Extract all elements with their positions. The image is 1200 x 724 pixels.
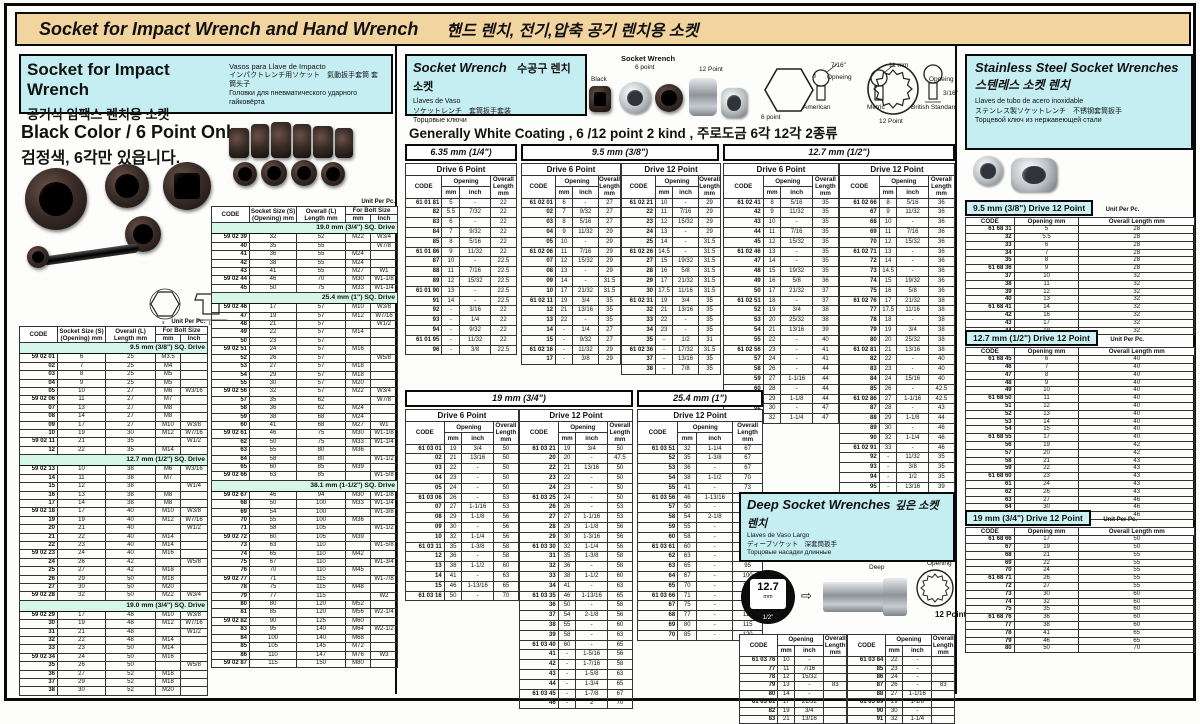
impact-header-box: Socket for Impact Wrench 공기식 임팩스 렌치용 소켓 … <box>19 54 393 114</box>
table-row: 301948M12W7/16 <box>20 620 208 628</box>
table-row: 90321-1/446 <box>840 433 955 443</box>
table-row: 34728 <box>966 249 1195 257</box>
table-row: 91321-1/4 <box>848 715 955 723</box>
table-row: 59 02 291748M10W3/8 <box>20 611 208 619</box>
table-row: 434155M27W1 <box>212 268 398 276</box>
table-row: 59 02 232440M16 <box>20 550 208 558</box>
table-row: 802025/3238 <box>840 335 955 345</box>
table-row: 773860 <box>966 621 1195 629</box>
table-row: 3017.511/1631.5 <box>622 286 721 296</box>
table-row: 455075M33W1-1/4 <box>212 284 398 292</box>
table-row: 61 02 11193/435 <box>522 296 621 306</box>
table-row: 59 02 461757M10W3/8 <box>212 304 398 312</box>
unit-per-pc-label: Unit Per Pc. <box>1106 207 1140 213</box>
table-row: 61 02 5118-37 <box>724 296 839 306</box>
table-row: 3441-63 <box>520 581 633 591</box>
table-row: 61 03 11351-3/858 <box>406 542 519 552</box>
diagram-socket-wrench-label: Socket Wrench <box>621 54 675 63</box>
table-row: 7670110M45 <box>212 567 398 575</box>
stainless-title: Stainless Steel Socket Wrenches <box>975 60 1183 75</box>
hex-6point-label: 6 point <box>761 114 781 121</box>
table-row: 2413-29 <box>622 228 721 238</box>
table-row: 6954100W1-3/8 <box>212 508 398 516</box>
table-row: 61 01 815-22 <box>406 198 517 208</box>
table-row: 61 03 51321-1/467 <box>638 444 763 454</box>
stainless-table-19: 19 mm (3/4") Drive 12 Point Unit Per Pc.… <box>965 508 1195 653</box>
table-row: 7818-38 <box>840 316 955 326</box>
table-row: 231215/3229 <box>622 218 721 228</box>
table-row: 593868M24 <box>212 413 398 421</box>
table-row: 7314.5-36 <box>840 267 955 277</box>
table-row: 403555W7/8 <box>212 242 398 250</box>
banner-title-ko: 핸드 렌치, 전기,압축 공기 렌치용 소켓 <box>446 17 698 41</box>
impact-catalog-table-2: CODE Socket Size (S) (Opening) mm Overal… <box>211 206 398 668</box>
impact-table-col2: Unit Per Pc. CODE Socket Size (S) (Openi… <box>211 198 397 668</box>
table-row: 43-1-5/863 <box>520 669 633 679</box>
table-row: 59 02 87115150M80 <box>212 659 398 667</box>
table-row: 7158105W1-1/2 <box>212 525 398 533</box>
table-row: 0524-50 <box>406 483 519 493</box>
table-row: 44-1-3/465 <box>520 679 633 689</box>
stainless-title-ko: 스텐레스 소켓 렌치 <box>975 76 1183 93</box>
table-row: 8323-40 <box>840 365 955 375</box>
table-row: 61 02 2110-29 <box>622 198 721 208</box>
impact-languages: Vasos para Llave de Impacto インパクトレンチ用ソケッ… <box>229 60 385 108</box>
table-row: 02725M4 <box>20 362 208 370</box>
table-row: 592243 <box>966 465 1195 473</box>
table-row: 59 02 563257M22W3/4 <box>212 388 398 396</box>
table-row: 352650W5/8 <box>20 662 208 670</box>
table-row: 46740 <box>966 364 1195 372</box>
table-row: 88271-1/16 <box>848 690 955 698</box>
table-row: 61 03 1650-70 <box>406 591 519 601</box>
table-row: 7214-36 <box>840 257 955 267</box>
table-row: 262950M18 <box>20 575 208 583</box>
section-bar: 25.4 mm (1") SQ. Drive <box>212 293 398 304</box>
unit-per-pc-label: Unit Per Pc. <box>213 199 395 205</box>
table-row: 1322-35 <box>522 316 621 326</box>
table-row: 3236-58 <box>520 562 633 572</box>
table-row: 61 68 411432 <box>966 304 1195 312</box>
table-row: 29301-3/1656 <box>520 532 633 542</box>
table-row: 94-1/235 <box>840 472 955 482</box>
table-row: 271519/3231.5 <box>622 257 721 267</box>
table-row: 54381-1/270 <box>638 474 763 484</box>
coating-title: Generally White Coating , 6 /12 point 2 … <box>409 122 957 142</box>
table-row: 77117/16 <box>740 665 847 673</box>
table-row: 784165 <box>966 629 1195 637</box>
table-row: 37542-1/856 <box>520 611 633 621</box>
table-row: 59 02 7771115W1-7/8 <box>212 575 398 583</box>
drive-size-badge: 12.7mm 1/2" <box>741 570 795 624</box>
table-row: 191940M12W7/16 <box>20 516 208 524</box>
table-row: 2020-47.5 <box>520 454 633 464</box>
table-row: 2423-50 <box>520 483 633 493</box>
section-bar: 38.1 mm (1-1/2") SQ. Drive <box>212 480 398 491</box>
table-row: 44117/1635 <box>724 228 839 238</box>
table-row: 0322-50 <box>406 464 519 474</box>
table-row: 38-7/835 <box>622 365 721 375</box>
table-row: 88291-1/844 <box>840 414 955 424</box>
table-row: 0930-56 <box>406 522 519 532</box>
table-row: 325.528 <box>966 234 1195 242</box>
table-row: 701215/3236 <box>840 237 955 247</box>
table-row: 59 02 061127M7 <box>20 396 208 404</box>
table-row: 492257M14 <box>212 329 398 337</box>
table-row: 502357 <box>212 337 398 345</box>
table-row: 656085M39 <box>212 463 398 471</box>
table-row: 081427M8 <box>20 413 208 421</box>
table-row: 542957M18 <box>212 371 398 379</box>
table-row: 632746 <box>966 496 1195 504</box>
table-row: 61 03 4060-65 <box>520 640 633 650</box>
table-row: 431732 <box>966 319 1195 327</box>
table-row: 7717.511/1638 <box>840 306 955 316</box>
table-row: 61 68 45640 <box>966 356 1195 364</box>
page-banner: Socket for Impact Wrench and Hand Wrench… <box>15 12 1191 46</box>
table-row: 61 02 6685/1636 <box>840 198 955 208</box>
table-row: 8526-42.5 <box>840 384 955 394</box>
unit-per-pc-label: Unit Per Pc. <box>1103 517 1137 523</box>
table-row: 572042 <box>966 449 1195 457</box>
table-title: 9.5 mm (3/8") Drive 12 Point <box>965 200 1093 216</box>
table-title: 19 mm (3/4") <box>405 390 633 407</box>
table-row: 04925M5 <box>20 379 208 387</box>
stainless-languages: Llaves de tubo de acero inoxidable ステンレス… <box>975 97 1183 126</box>
table-row: 212240M14 <box>20 533 208 541</box>
table-row: 794665 <box>966 637 1195 645</box>
table-row: 61 02 86271-1/1642.5 <box>840 394 955 404</box>
table-row: 733060 <box>966 590 1195 598</box>
table-row: 8585/1622 <box>406 237 517 247</box>
table-row: 541540 <box>966 426 1195 434</box>
table-row: 3855-60 <box>520 620 633 630</box>
table-row: 242642W5/8 <box>20 558 208 566</box>
table-row: 022113/1650 <box>406 454 519 464</box>
table-row: 1441-63 <box>406 571 519 581</box>
table-row: 8728-43 <box>840 404 955 414</box>
table-row: 61 68 661750 <box>966 536 1195 544</box>
table-title: 9.5 mm (3/8") <box>521 144 719 161</box>
section-bar: 12.7 mm (1/2") SQ. Drive <box>20 455 208 466</box>
table-row: 0423-50 <box>406 474 519 484</box>
table-row: 61 02 016-27 <box>522 198 621 208</box>
table-row: 3322-35 <box>622 316 721 326</box>
table-row: 161338M8 <box>20 491 208 499</box>
table-row: 61 68 31528 <box>966 226 1195 234</box>
table-row: 0813-29 <box>522 267 621 277</box>
table-row: 7567110W1-3/4 <box>212 559 398 567</box>
socket-wrench-section: Socket Wrench 수공구 렌치소켓 Llaves de Vaso ソケ… <box>403 50 957 706</box>
table-row: 61 68 712655 <box>966 575 1195 583</box>
table-row: 61 03 0626-53 <box>406 493 519 503</box>
british-label: British Standard <box>911 104 957 111</box>
arrow-icon: ⇨ <box>801 588 812 604</box>
table-row: 37-13/1635 <box>622 355 721 365</box>
socket-wrench-header-box: Socket Wrench 수공구 렌치소켓 Llaves de Vaso ソケ… <box>405 54 587 116</box>
table-row: 101721/3231.5 <box>522 286 621 296</box>
section-bar: 19.0 mm (3/4") SQ. Drive <box>20 600 208 611</box>
table-row: 423855M24 <box>212 259 398 267</box>
table-row: 52193/438 <box>724 306 839 316</box>
table-row: 252742M18 <box>20 567 208 575</box>
table-row: 481519/3235 <box>724 267 839 277</box>
metric-label: Metric <box>867 104 885 111</box>
table-row: 93-1/422 <box>406 316 517 326</box>
table-row: 14-1/427 <box>522 325 621 335</box>
section-bar: 19.0 mm (3/4") SQ. Drive <box>212 223 398 234</box>
table-row: 8014- <box>740 690 847 698</box>
table-row: 61 03 2524-50 <box>520 493 633 503</box>
american-bolt-icon <box>807 64 847 106</box>
table-row: 8479/3222 <box>406 228 517 238</box>
table-row: 222340M14 <box>20 541 208 549</box>
table-row: 322248M14 <box>20 637 208 645</box>
table-row: 59 02 674694M30W1-1/8 <box>212 491 398 499</box>
table-row: 84100140M68 <box>212 634 398 642</box>
deep-socket-table: CODEOpeningOverall Length mm mminch 61 0… <box>739 634 955 724</box>
table-row: 67911/3236 <box>840 208 955 218</box>
table-title: 19 mm (3/4") Drive 12 Point <box>965 510 1091 526</box>
british-bolt-icon <box>919 62 949 106</box>
table-row: 741519/3236 <box>840 276 955 286</box>
table-row: 61 03 8422- <box>848 657 955 665</box>
diagram-12point-label: 12 Point <box>699 66 723 73</box>
stainless-table-12-7: 12.7 mm (1/2") Drive 12 Point Unit Per P… <box>965 328 1195 520</box>
deep-12point-ring-icon <box>915 568 955 608</box>
table-row: 702455 <box>966 567 1195 575</box>
table-row: 7913-83 <box>740 682 847 690</box>
table-row: 151238W1/4 <box>20 483 208 491</box>
table-row: 31351-3/858 <box>520 552 633 562</box>
table-row: 5724-41 <box>724 355 839 365</box>
table-row: 69117/1636 <box>840 228 955 238</box>
table-row: 8624- <box>848 673 955 681</box>
table-row: 805070 <box>966 645 1195 653</box>
table-row: 3650-58 <box>520 601 633 611</box>
table-row: 3423-35 <box>622 325 721 335</box>
table-6-35mm: 6.35 mm (1/4") Drive 6 Point CODEOpening… <box>405 144 517 355</box>
table-row: 59 02 112135W1/2 <box>20 438 208 446</box>
table-row: 122113/1635 <box>522 306 621 316</box>
table-row: 8185120M56W2-1/4 <box>212 609 398 617</box>
table-row: 2322-50 <box>520 474 633 484</box>
table-row: 61 01 86911/3222 <box>406 247 517 257</box>
table-row: 635580M36 <box>212 447 398 455</box>
table-row: 542113/1639 <box>724 325 839 335</box>
table-row: 61 03 45-1-7/867 <box>520 689 633 699</box>
table-row: 61 68 551740 <box>966 434 1195 442</box>
table-row: 832113/16 <box>740 715 847 723</box>
table-row: 9030- <box>848 707 955 715</box>
table-row: 8080120M52 <box>212 601 398 609</box>
black-color-headline: Black Color / 6 Point Only <box>21 122 241 143</box>
table-row: 0279/3227 <box>522 208 621 218</box>
table-row: 59271-1/1644 <box>724 374 839 384</box>
stainless-header-box: Stainless Steel Socket Wrenches 스텐레스 소켓 … <box>965 54 1193 150</box>
unit-per-pc-label: Unit Per Pc. <box>1110 337 1144 343</box>
table-row: 101930M12W7/16 <box>20 430 208 438</box>
deep-socket-graphic: 12.7mm 1/2" ⇨ Deep 12 Point Opening <box>739 562 955 634</box>
table-row: 61 68 602343 <box>966 473 1195 481</box>
table-row: 482157W1/2 <box>212 321 398 329</box>
deep-title: Deep Socket Wrenches <box>747 497 891 512</box>
table-row: 49165/836 <box>724 276 839 286</box>
table-row: 61 03 35461-13/1665 <box>520 591 633 601</box>
table-row: 42-1-7/1658 <box>520 660 633 670</box>
table-row: 836-22 <box>406 218 517 228</box>
table-row: 04911/3229 <box>522 228 621 238</box>
deep-opening-label: Opening <box>927 560 952 567</box>
table-19mm: 19 mm (3/4") Drive 6 Point CODEOpeningOv… <box>405 390 633 709</box>
table-row: 48940 <box>966 379 1195 387</box>
table-row: 61 03 01193/450 <box>406 444 519 454</box>
table-row: 5336-67 <box>638 464 763 474</box>
table-row: 61 02 06117/1629 <box>522 247 621 257</box>
table-title: 12.7 mm (1/2") Drive 12 Point <box>965 330 1098 346</box>
table-row: 202140W1/2 <box>20 525 208 533</box>
table-row: 61 03 811721/32 <box>740 699 847 707</box>
table-row: 1236-58 <box>406 552 519 562</box>
page-frame: Socket for Impact Wrench and Hand Wrench… <box>4 3 1196 701</box>
table-row: 61 01 95-11/3222 <box>406 335 517 345</box>
table-row: 8523- <box>848 665 955 673</box>
table-row: 5826-44 <box>724 365 839 375</box>
table-row: 825.57/3222 <box>406 208 517 218</box>
table-row: 03825M5 <box>20 371 208 379</box>
table-row: 222113/1650 <box>520 464 633 474</box>
table-row: 47840 <box>966 371 1195 379</box>
table-row: 15-9/3227 <box>522 335 621 345</box>
table-row: 61 02 4613-35 <box>724 247 839 257</box>
table-row: 371032 <box>966 272 1195 280</box>
table-row: 531440 <box>966 418 1195 426</box>
table-row: 59 02 512457M16 <box>212 346 398 354</box>
table-row: 532757M18 <box>212 363 398 371</box>
table-row: 891215/3222.5 <box>406 276 517 286</box>
table-row: 312148W1/2 <box>20 628 208 636</box>
table-row: 28165/831.5 <box>622 267 721 277</box>
table-row: 645880W1-1/2 <box>212 455 398 463</box>
table-row: 33381-1/260 <box>520 571 633 581</box>
table-row: 79193/438 <box>840 325 955 335</box>
table-row: 13381-1/260 <box>406 562 519 572</box>
table-row: 95-13/1639 <box>840 482 955 492</box>
impact-wrench-section: Socket for Impact Wrench 공기식 임팩스 렌치용 소켓 … <box>17 50 397 702</box>
table-row: 682155 <box>966 551 1195 559</box>
table-row: 273050M20 <box>20 583 208 591</box>
table-row: 391232 <box>966 288 1195 296</box>
table-row: 92-3/1622 <box>406 306 517 316</box>
table-row: 35-1/231 <box>622 335 721 345</box>
impact-title: Socket for Impact Wrench <box>27 60 219 100</box>
deep-12point-label: 12 Point <box>935 610 966 619</box>
table-row: 582143 <box>966 457 1195 465</box>
table-row: 4714-35 <box>724 257 839 267</box>
table-row: 85105145M72 <box>212 643 398 651</box>
table-row: 61 03 30321-1/456 <box>520 542 633 552</box>
stainless-table-9-5: 9.5 mm (3/8") Drive 12 Point Unit Per Pc… <box>965 198 1195 335</box>
table-row: 61 68 36928 <box>966 265 1195 273</box>
table-row: 381132 <box>966 280 1195 288</box>
table-row: 051027M6W3/16 <box>20 388 208 396</box>
table-row: 61 02 4185/1635 <box>724 198 839 208</box>
table-row: 82193/4 <box>740 707 847 715</box>
table-row: 612443 <box>966 480 1195 488</box>
table-title: 25.4 mm (1") <box>637 390 763 407</box>
table-row: 141138M7 <box>20 474 208 482</box>
table-row: 75165/836 <box>840 286 955 296</box>
impact-title-ko: 공기식 임팩스 렌치용 소켓 <box>27 104 219 123</box>
table-row: 071215/3229 <box>522 257 621 267</box>
table-row: 61 02 2614.5-31.5 <box>622 247 721 257</box>
table-row: 722755 <box>966 582 1195 590</box>
table-9-5mm: 9.5 mm (3/8") Drive 6 Point CODEOpeningO… <box>521 144 719 375</box>
table-row: 61 02 31193/435 <box>622 296 721 306</box>
diagram-black-label: Black <box>591 76 607 83</box>
table-row: 071327M8 <box>20 404 208 412</box>
table-row: 46-270 <box>520 699 633 709</box>
table-row: 27271-1/1653 <box>520 513 633 523</box>
table-row: 6810-36 <box>840 218 955 228</box>
table-row: 553057M20 <box>212 379 398 387</box>
table-row: 28291-1/856 <box>520 522 633 532</box>
table-row: 86110147M76W3 <box>212 651 398 659</box>
table-row: 322113/1635 <box>622 306 721 316</box>
metric-size-label: 11 mm <box>889 62 908 69</box>
table-row: 59 02 666385W1-5/8 <box>212 472 398 480</box>
metric-bolt-icon <box>865 64 905 106</box>
table-row: 61 02 36-17/3231.5 <box>622 345 721 355</box>
table-row: 59 02 444670M30W1-1/8 <box>212 276 398 284</box>
banner-title-en: Socket for Impact Wrench and Hand Wrench <box>39 19 418 40</box>
table-row: 41-1-5/1656 <box>520 650 633 660</box>
deep-socket-header-box: Deep Socket Wrenches 깊은 소켓 렌치 Llaves de … <box>739 492 955 562</box>
table-row: 94-9/3222 <box>406 325 517 335</box>
table-row: 2626-53 <box>520 503 633 513</box>
table-row: 5522-40 <box>724 335 839 345</box>
table-row: 59 02 131038M6W3/16 <box>20 466 208 474</box>
table-row: 625075M33W1-1/4 <box>212 438 398 446</box>
table-row: 413655M24 <box>212 251 398 259</box>
table-row: 471957M12W7/16 <box>212 312 398 320</box>
table-row: 96-3/822.5 <box>406 345 517 355</box>
table-row: 362752M18 <box>20 670 208 678</box>
table-row: 0914-31.5 <box>522 276 621 286</box>
table-row: 17-3/829 <box>522 355 621 365</box>
table-row: 622643 <box>966 488 1195 496</box>
table-row: 522657W5/8 <box>212 354 398 362</box>
deep-languages: Llaves de Vaso Largo ディープソケット 深套筒扳手 Торц… <box>747 532 947 558</box>
table-row: 8726-83 <box>848 682 955 690</box>
table-row: 8710-22.5 <box>406 257 517 267</box>
british-size-label: 3/16" <box>943 90 958 97</box>
table-row: 122235M14 <box>20 446 208 454</box>
table-row: 59 02 393252M22W3/4 <box>212 234 398 242</box>
table-row: 59 02 181740M10W3/8 <box>20 508 208 516</box>
table-row: 61 02 812113/1638 <box>840 345 955 355</box>
table-row: 0510-29 <box>522 237 621 247</box>
table-row: 61 68 501140 <box>966 395 1195 403</box>
table-row: 59 02 283250M22W3/4 <box>20 592 208 600</box>
table-row: 3958-63 <box>520 630 633 640</box>
table-row: 6850100M33W1-1/4 <box>212 500 398 508</box>
table-row: 532025/3238 <box>724 316 839 326</box>
table-row: 291721/3231.5 <box>622 276 721 286</box>
table-row: 93-3/835 <box>840 463 955 473</box>
table-row: 33628 <box>966 241 1195 249</box>
table-row: 61 02 5623-41 <box>724 345 839 355</box>
